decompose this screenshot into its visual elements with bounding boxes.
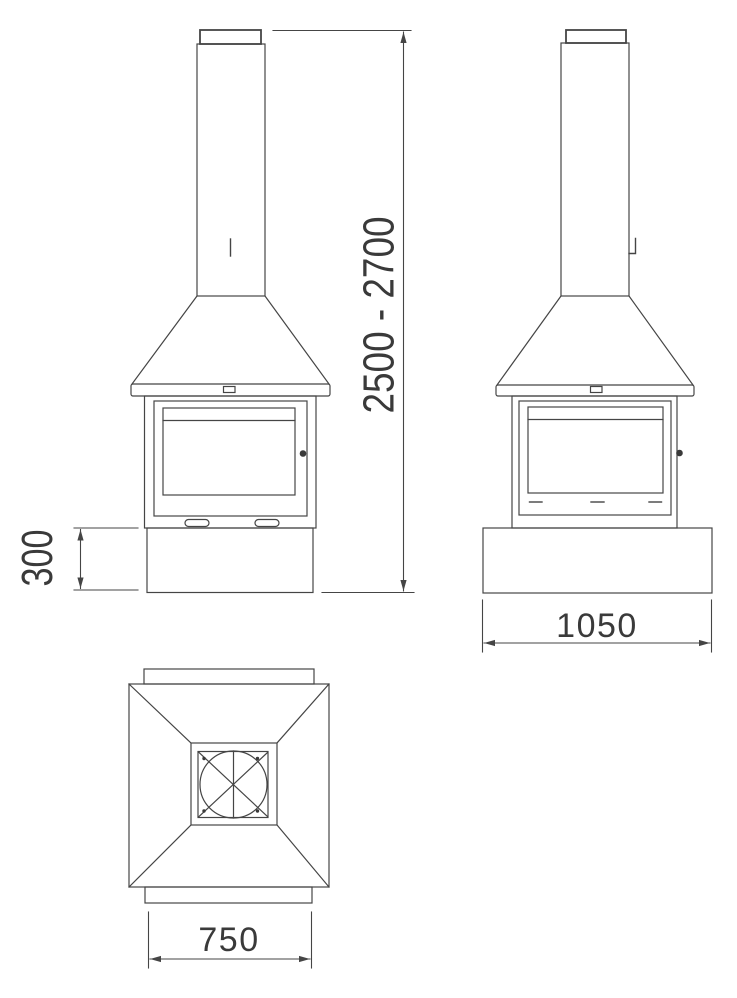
screw-dot-top-right xyxy=(256,757,259,760)
plinth-height-label: 300 xyxy=(13,530,62,587)
chimney-cap-side xyxy=(566,30,626,43)
plinth-edge-bottom-tab xyxy=(145,887,312,903)
screw-dot-bottom-left xyxy=(202,809,205,812)
plinth-side xyxy=(483,528,712,593)
top-view xyxy=(129,669,329,903)
overall-height-dimension: 2500 - 2700 xyxy=(273,31,414,593)
base-width-label: 1050 xyxy=(556,607,638,645)
door-knob xyxy=(300,450,307,457)
hood-ridge-top-left xyxy=(129,684,191,743)
overall-height-label: 2500 - 2700 xyxy=(355,217,404,414)
chimney-pipe-side xyxy=(561,43,629,296)
hood-ridge-top-right xyxy=(277,684,329,743)
side-view xyxy=(483,30,712,593)
door-knob-side xyxy=(676,450,683,457)
vent-oval-right xyxy=(255,520,279,527)
plinth-height-dimension: 300 xyxy=(13,528,138,590)
hood-lip xyxy=(131,384,330,396)
chimney-pipe xyxy=(197,44,265,296)
hood-ridge-bottom-right xyxy=(277,825,329,887)
screw-dot-bottom-right xyxy=(256,809,259,812)
chimney-cap xyxy=(200,30,261,44)
hood-left-slant xyxy=(132,296,197,384)
top-width-label: 750 xyxy=(198,921,259,959)
vent-oval-left xyxy=(185,520,209,527)
base-width-dimension: 1050 xyxy=(483,600,712,652)
fireplace-dimension-drawing: 2500 - 2700 300 1050 xyxy=(0,0,737,998)
hood-ridge-bottom-left xyxy=(129,825,191,887)
technical-drawing-page: 2500 - 2700 300 1050 xyxy=(0,0,737,998)
hood-right-slant-side xyxy=(629,296,693,385)
hood-lip-latch-side xyxy=(591,387,603,393)
hood-left-slant-side xyxy=(497,296,561,385)
screw-dot-top-left xyxy=(202,757,205,760)
top-width-dimension: 750 xyxy=(149,912,312,968)
firebox-inner-frame-side xyxy=(519,401,671,515)
firebox-inner-frame xyxy=(154,401,307,516)
hood-lip-latch xyxy=(224,387,236,393)
plinth-front xyxy=(147,528,313,593)
front-view xyxy=(131,30,330,593)
hood-right-slant xyxy=(265,296,329,384)
plinth-edge-top-tab xyxy=(144,669,314,684)
firebox-outer-frame-side xyxy=(512,396,677,528)
firebox-outer-frame xyxy=(145,396,317,528)
damper-handle-side xyxy=(629,239,636,254)
